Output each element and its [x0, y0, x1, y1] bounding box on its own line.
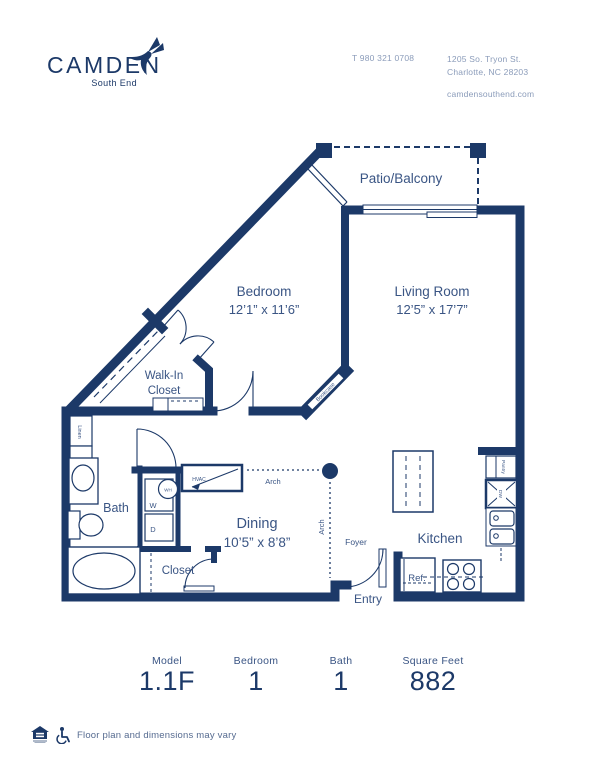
room-label-living: Living Room: [394, 284, 469, 299]
room-dims-dining: 10’5” x 8’8”: [224, 535, 291, 550]
room-label-dining: Dining: [236, 516, 277, 532]
room-label-entry: Entry: [354, 592, 382, 606]
kitchen-island: [393, 451, 433, 512]
disclaimer-text: Floor plan and dimensions may vary: [77, 730, 236, 741]
linen-label: Linen: [76, 425, 82, 438]
structural-column: [322, 463, 338, 479]
pantry-label: Pantry: [500, 460, 506, 474]
room-label-kitchen: Kitchen: [417, 531, 462, 546]
refrigerator-label: Ref.: [408, 573, 425, 584]
hvac-label: HVAC: [192, 477, 206, 483]
dishwasher-label: DW: [497, 490, 503, 498]
room-dims-bedroom: 12’1” x 11’6”: [229, 302, 300, 317]
arch-label-horizontal: Arch: [265, 477, 280, 486]
room-label-bath: Bath: [103, 501, 129, 515]
room-label-bedroom: Bedroom: [237, 284, 292, 299]
stat-square-feet: Square Feet 882: [373, 655, 493, 695]
room-dims-living: 12’5” x 17’7”: [396, 302, 468, 317]
living-room-window: [363, 205, 477, 218]
footer: Floor plan and dimensions may vary: [31, 726, 236, 744]
arch-label-vertical: Arch: [317, 519, 326, 534]
equal-housing-icon: [31, 726, 49, 744]
dryer-label: D: [150, 525, 156, 534]
stove: [443, 560, 481, 592]
room-label-closet: Closet: [162, 565, 195, 577]
accessibility-icon: [56, 727, 70, 744]
bedroom-diagonal-window: [307, 164, 347, 206]
bathtub: [68, 547, 140, 594]
room-label-foyer: Foyer: [345, 537, 367, 547]
toilet: [68, 511, 103, 539]
stat-square-feet-value: 882: [373, 667, 493, 695]
bath-vanity: [69, 458, 98, 504]
washer-label: W: [149, 501, 157, 510]
room-label-walkin-2: Closet: [148, 385, 181, 397]
hvac-unit: [182, 465, 242, 491]
water-heater-label: WH: [164, 488, 172, 493]
kitchen-sink: [486, 508, 516, 562]
room-label-patio: Patio/Balcony: [360, 171, 443, 186]
room-label-walkin-1: Walk-In: [145, 370, 184, 382]
interior-walls: [66, 210, 520, 560]
